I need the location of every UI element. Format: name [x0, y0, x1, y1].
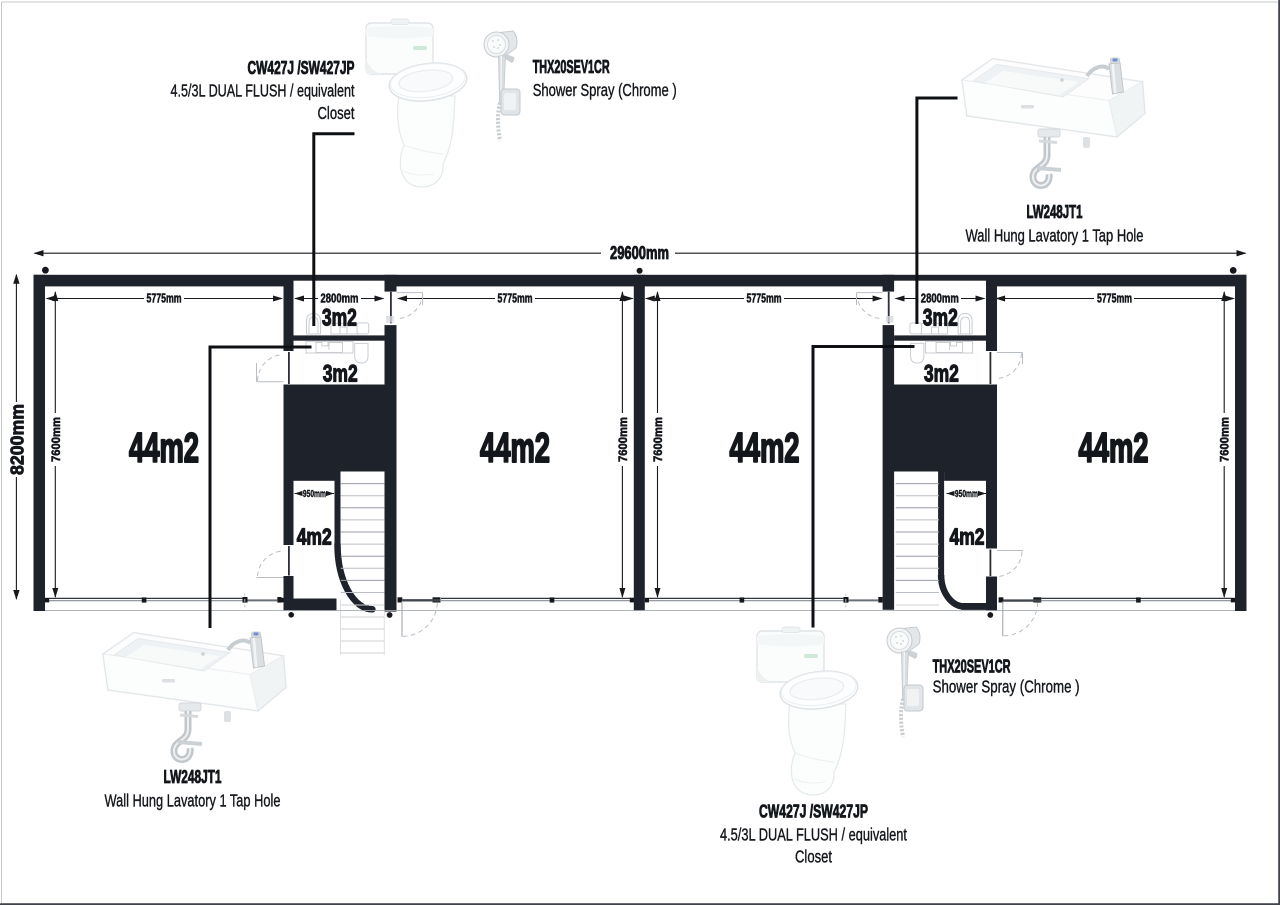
svg-text:4.5/3L DUAL FLUSH / equivalent: 4.5/3L DUAL FLUSH / equivalent: [720, 825, 907, 845]
svg-text:950mm: 950mm: [303, 489, 326, 500]
svg-text:5775mm: 5775mm: [498, 292, 533, 306]
svg-text:4m2: 4m2: [950, 524, 985, 550]
svg-text:Wall Hung Lavatory 1 Tap Hole: Wall Hung Lavatory 1 Tap Hole: [966, 226, 1144, 246]
svg-text:4m2: 4m2: [297, 524, 332, 550]
svg-text:8200mm: 8200mm: [7, 404, 27, 475]
svg-text:7600mm: 7600mm: [1218, 417, 1232, 462]
svg-text:950mm: 950mm: [955, 489, 978, 500]
svg-text:LW248JT1: LW248JT1: [164, 767, 222, 787]
svg-text:2800mm: 2800mm: [921, 292, 959, 306]
svg-text:4.5/3L DUAL FLUSH / equivalent: 4.5/3L DUAL FLUSH / equivalent: [171, 81, 355, 101]
svg-text:44m2: 44m2: [129, 424, 199, 471]
svg-text:CW427J /SW427JP: CW427J /SW427JP: [248, 58, 355, 78]
svg-text:LW248JT1: LW248JT1: [1027, 202, 1083, 222]
svg-text:44m2: 44m2: [1079, 424, 1149, 471]
svg-text:3m2: 3m2: [322, 305, 357, 332]
svg-text:44m2: 44m2: [480, 424, 550, 471]
svg-text:Shower Spray (Chrome ): Shower Spray (Chrome ): [533, 80, 677, 100]
svg-text:Wall Hung Lavatory 1 Tap Hole: Wall Hung Lavatory 1 Tap Hole: [105, 791, 281, 811]
svg-text:Shower Spray (Chrome ): Shower Spray (Chrome ): [933, 677, 1080, 697]
svg-text:3m2: 3m2: [323, 361, 358, 388]
svg-text:Closet: Closet: [318, 103, 355, 123]
svg-text:44m2: 44m2: [730, 424, 800, 471]
svg-text:CW427J /SW427JP: CW427J /SW427JP: [759, 802, 868, 822]
svg-text:3m2: 3m2: [923, 305, 958, 332]
svg-text:3m2: 3m2: [924, 361, 959, 388]
svg-text:5775mm: 5775mm: [747, 292, 782, 306]
svg-text:Closet: Closet: [795, 847, 832, 867]
svg-text:7600mm: 7600mm: [616, 417, 630, 462]
svg-text:5775mm: 5775mm: [147, 292, 182, 306]
svg-text:2800mm: 2800mm: [321, 292, 359, 306]
svg-text:7600mm: 7600mm: [49, 417, 63, 462]
svg-text:THX20SEV1CR: THX20SEV1CR: [533, 57, 610, 77]
svg-text:THX20SEV1CR: THX20SEV1CR: [933, 657, 1011, 677]
svg-text:5775mm: 5775mm: [1097, 292, 1132, 306]
svg-text:7600mm: 7600mm: [651, 417, 665, 462]
svg-text:29600mm: 29600mm: [610, 243, 669, 263]
